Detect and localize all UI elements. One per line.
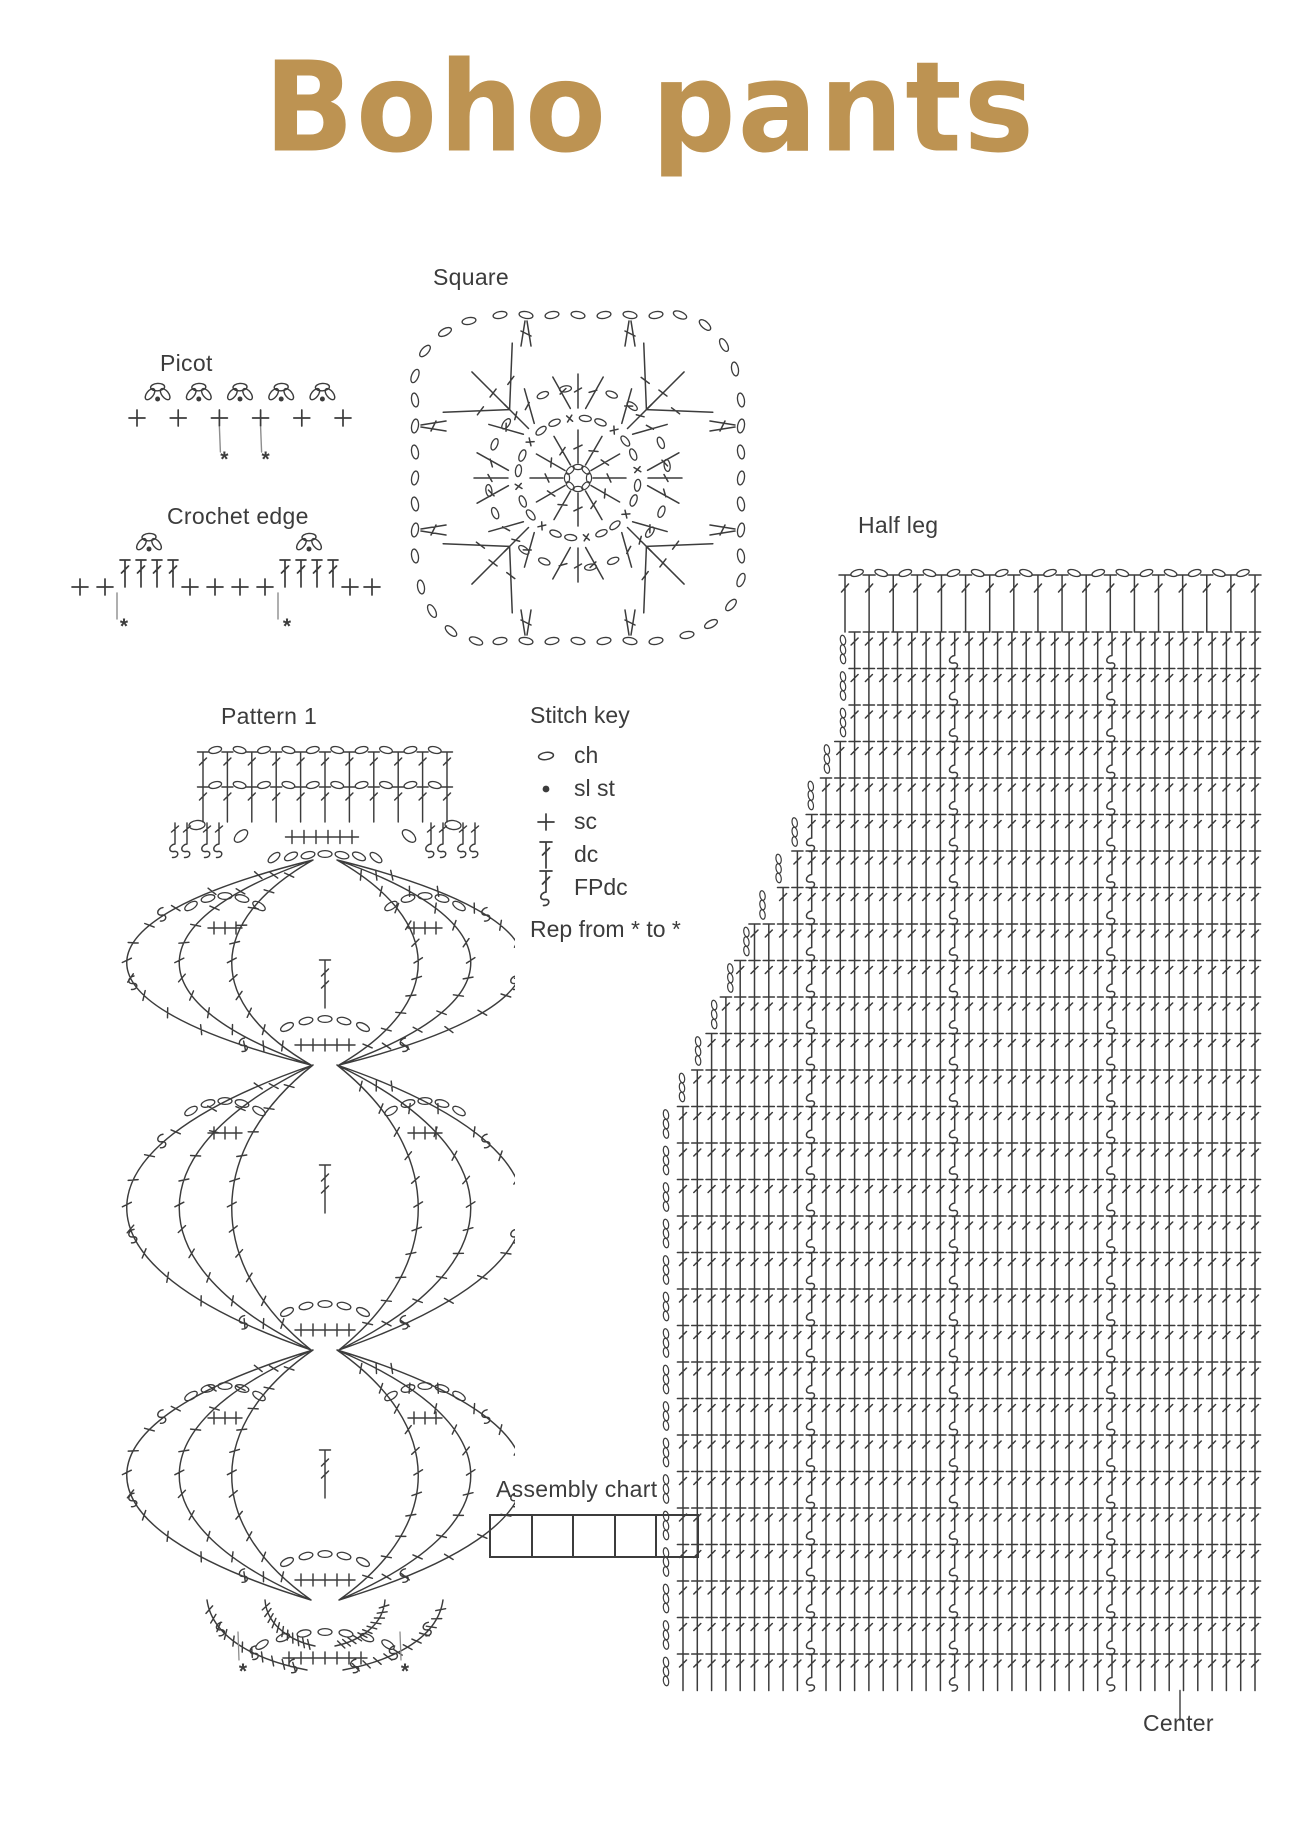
- repeat-marker: *: [283, 615, 292, 638]
- picot-diagram: **: [118, 378, 368, 478]
- sc-icon: [530, 813, 562, 831]
- assembly-cell: [531, 1514, 575, 1558]
- sl-st-icon: [530, 780, 562, 798]
- assembly-cell: [572, 1514, 616, 1558]
- stitch-key-item-label: sc: [574, 808, 597, 835]
- dc-icon: [530, 839, 562, 871]
- half-leg-label: Half leg: [858, 512, 938, 539]
- pattern1-diagram: **: [115, 735, 515, 1700]
- stitch-key-item-label: dc: [574, 841, 598, 868]
- fpdc-icon: [530, 868, 562, 908]
- pattern1-label: Pattern 1: [221, 703, 317, 730]
- picot-label: Picot: [160, 350, 213, 377]
- repeat-marker: *: [220, 448, 229, 471]
- square-label: Square: [433, 264, 509, 291]
- repeat-marker: *: [239, 1660, 248, 1683]
- repeat-marker: *: [120, 615, 129, 638]
- pattern-page: Boho pants Square Picot Crochet edge Hal…: [0, 0, 1300, 1838]
- page-title: Boho pants: [0, 34, 1300, 180]
- ch-icon: [530, 747, 562, 765]
- repeat-marker: *: [401, 1660, 410, 1683]
- crochet-edge-diagram: **: [55, 528, 395, 643]
- repeat-marker: *: [262, 448, 271, 471]
- stitch-key-item-label: sl st: [574, 775, 615, 802]
- crochet-edge-label: Crochet edge: [167, 503, 309, 530]
- stitch-key-item-label: ch: [574, 742, 598, 769]
- assembly-chart-label: Assembly chart: [496, 1476, 657, 1503]
- half-leg-chart: [640, 568, 1268, 1730]
- stitch-key-item-label: FPdc: [574, 874, 628, 901]
